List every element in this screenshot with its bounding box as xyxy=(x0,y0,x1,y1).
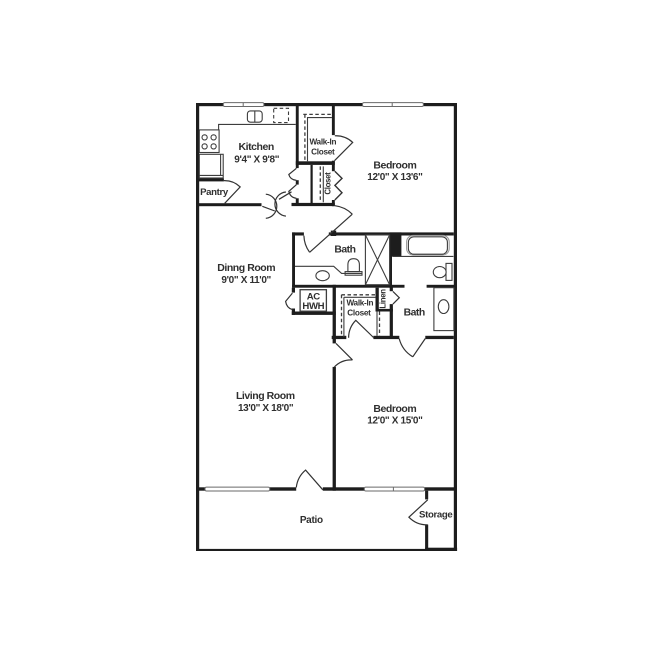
svg-text:Dinng Room: Dinng Room xyxy=(217,262,275,274)
svg-text:Linen: Linen xyxy=(379,289,388,309)
svg-text:Storage: Storage xyxy=(419,510,452,521)
svg-text:Closet: Closet xyxy=(324,172,333,195)
svg-text:Bath: Bath xyxy=(404,307,425,318)
svg-text:Living Room: Living Room xyxy=(236,390,295,402)
svg-text:Walk-In: Walk-In xyxy=(309,137,336,146)
svg-text:Bedroom: Bedroom xyxy=(373,403,416,415)
svg-text:Closet: Closet xyxy=(347,309,371,318)
svg-text:Walk-In: Walk-In xyxy=(346,298,373,307)
svg-text:Kitchen: Kitchen xyxy=(239,141,274,153)
svg-text:Closet: Closet xyxy=(311,147,335,156)
svg-text:HWH: HWH xyxy=(302,301,324,312)
svg-text:Bedroom: Bedroom xyxy=(373,159,416,171)
svg-text:Bath: Bath xyxy=(334,244,355,255)
svg-text:12'0" X 15'0": 12'0" X 15'0" xyxy=(367,415,423,426)
svg-text:Patio: Patio xyxy=(300,515,323,526)
svg-text:12'0" X 13'6": 12'0" X 13'6" xyxy=(367,172,423,183)
svg-text:9'0" X 11'0": 9'0" X 11'0" xyxy=(221,275,271,286)
svg-text:13'0" X 18'0": 13'0" X 18'0" xyxy=(238,403,294,414)
svg-text:9'4" X 9'8": 9'4" X 9'8" xyxy=(234,154,279,165)
svg-text:Pantry: Pantry xyxy=(200,187,229,198)
